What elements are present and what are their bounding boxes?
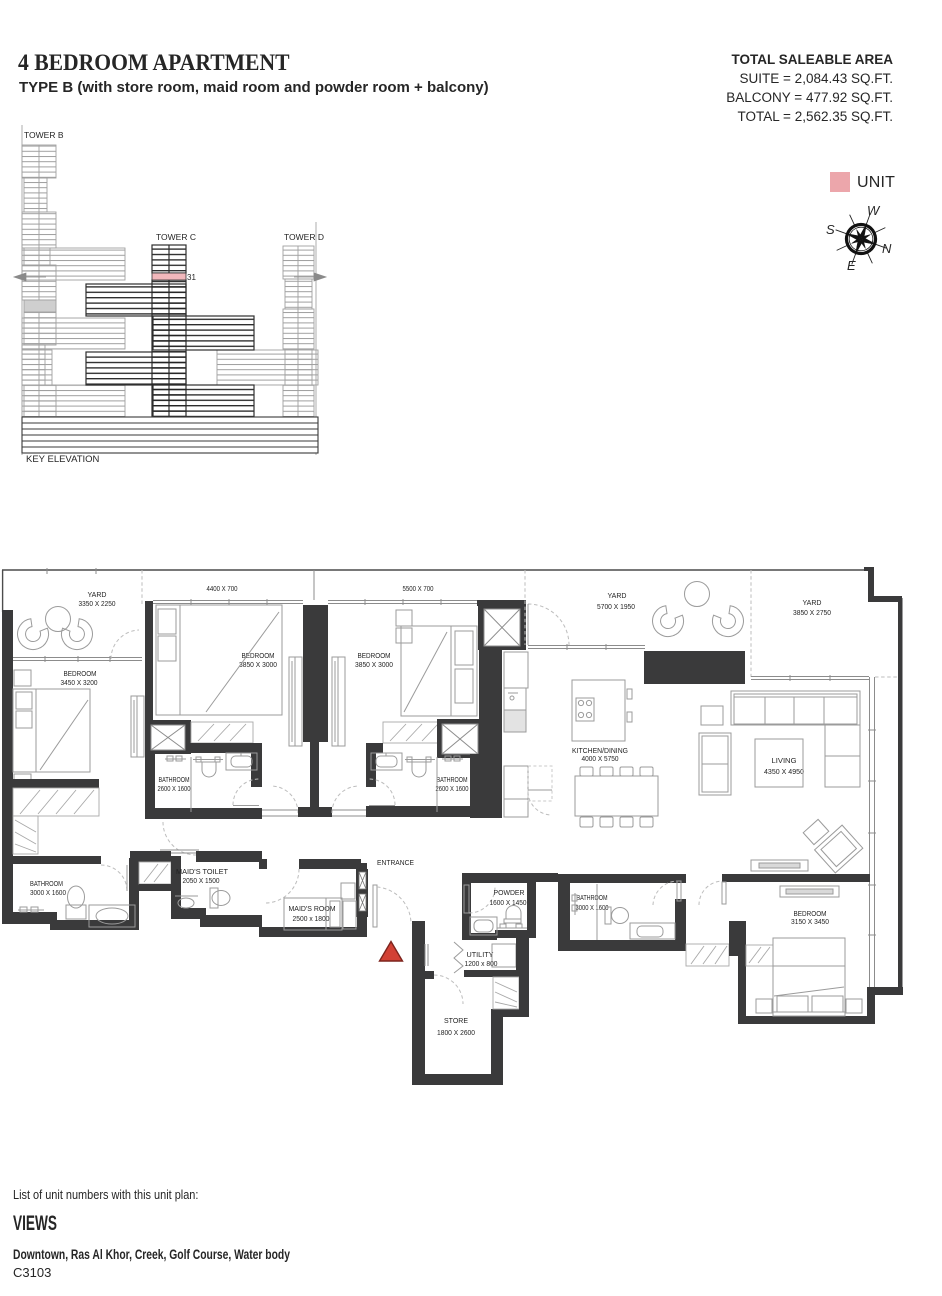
svg-text:LIVING: LIVING [772,756,797,765]
svg-text:5500 X 700: 5500 X 700 [403,584,434,593]
svg-text:YARD: YARD [803,598,822,607]
svg-text:1600 X 1450: 1600 X 1450 [490,898,527,907]
svg-text:4350 X 4950: 4350 X 4950 [764,767,804,776]
svg-text:TOWER D: TOWER D [284,232,324,242]
svg-text:3850 X 3000: 3850 X 3000 [355,660,393,669]
svg-text:TOWER B: TOWER B [24,130,64,140]
svg-text:3450 X 3200: 3450 X 3200 [61,678,98,687]
svg-text:TOWER C: TOWER C [156,232,196,242]
svg-text:BATHROOM: BATHROOM [577,893,608,902]
svg-text:KEY ELEVATION: KEY ELEVATION [26,454,100,465]
svg-text:POWDER: POWDER [494,888,525,897]
svg-text:MAID'S TOILET: MAID'S TOILET [176,867,228,876]
svg-text:BEDROOM: BEDROOM [242,651,275,660]
svg-text:BATHROOM: BATHROOM [30,879,63,888]
svg-text:31: 31 [187,273,196,282]
svg-text:N: N [882,241,892,256]
svg-text:4000 X 5750: 4000 X 5750 [582,754,619,763]
svg-text:3850 X 3000: 3850 X 3000 [239,660,277,669]
svg-text:BATHROOM: BATHROOM [437,775,468,784]
svg-text:MAID'S ROOM: MAID'S ROOM [289,904,336,913]
svg-text:YARD: YARD [608,591,627,600]
svg-text:1800 X 2600: 1800 X 2600 [437,1028,475,1037]
svg-text:E: E [847,258,856,273]
svg-text:BATHROOM: BATHROOM [159,775,190,784]
svg-text:4400 X 700: 4400 X 700 [207,584,238,593]
svg-text:UTILITY: UTILITY [467,950,494,959]
svg-text:3000 X 1600: 3000 X 1600 [576,903,609,912]
svg-text:2050 X 1500: 2050 X 1500 [183,876,220,885]
svg-text:3850 X 2750: 3850 X 2750 [793,608,831,617]
svg-text:S: S [826,222,835,237]
svg-text:3000 X 1600: 3000 X 1600 [30,888,66,897]
svg-text:STORE: STORE [444,1016,468,1025]
svg-text:2600 X 1600: 2600 X 1600 [158,784,191,793]
svg-text:2500 x 1800: 2500 x 1800 [293,914,330,923]
svg-text:BEDROOM: BEDROOM [64,669,97,678]
svg-text:W: W [867,203,881,218]
svg-text:3350 X 2250: 3350 X 2250 [79,599,116,608]
svg-text:3150 X 3450: 3150 X 3450 [791,917,829,926]
svg-text:2600 X 1600: 2600 X 1600 [436,784,469,793]
svg-text:BEDROOM: BEDROOM [358,651,391,660]
svg-text:5700 X 1950: 5700 X 1950 [597,602,635,611]
svg-text:ENTRANCE: ENTRANCE [377,858,414,867]
svg-text:YARD: YARD [88,590,107,599]
